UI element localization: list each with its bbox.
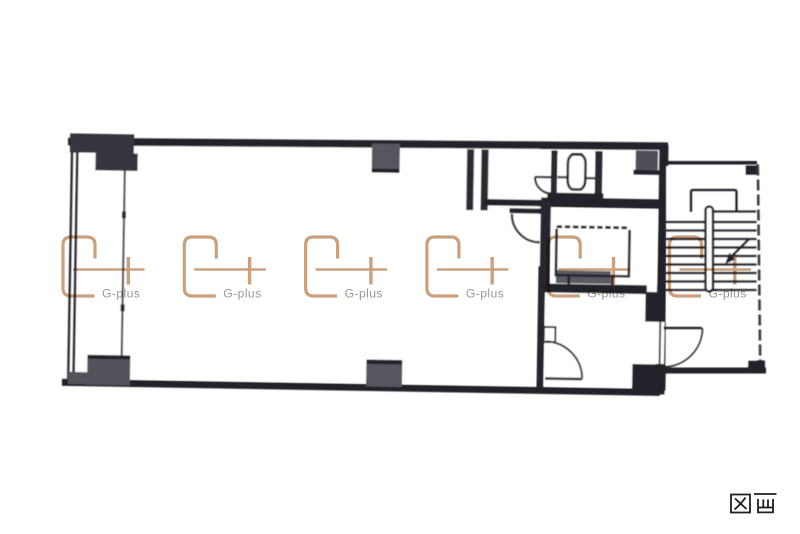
svg-text:G-plus: G-plus bbox=[102, 287, 140, 301]
